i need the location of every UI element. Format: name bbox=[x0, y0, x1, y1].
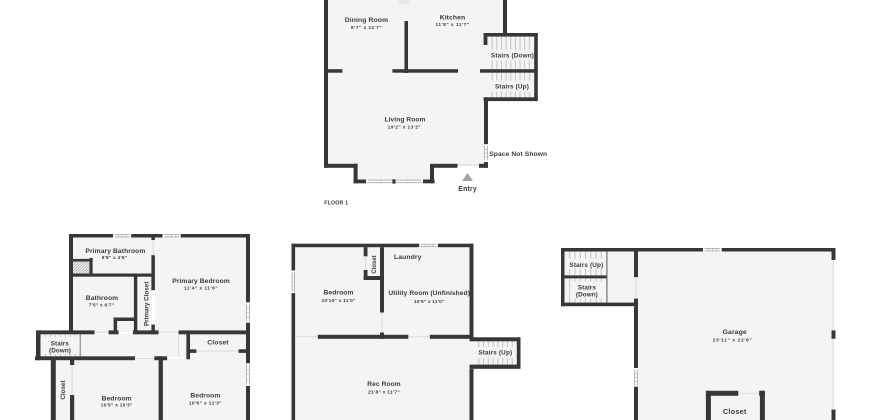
svg-text:19'2" x 13'2": 19'2" x 13'2" bbox=[388, 125, 421, 131]
svg-text:10'5" x 10'3": 10'5" x 10'3" bbox=[101, 403, 133, 409]
svg-text:9'7" x 11'7": 9'7" x 11'7" bbox=[351, 25, 382, 31]
svg-text:23'11" x 22'6": 23'11" x 22'6" bbox=[713, 338, 753, 344]
svg-text:Closet: Closet bbox=[207, 339, 229, 346]
svg-text:Garage: Garage bbox=[723, 329, 747, 336]
svg-text:Closet: Closet bbox=[372, 255, 378, 273]
svg-text:Stairs (Down): Stairs (Down) bbox=[491, 52, 534, 59]
svg-text:11'4" x 11'6": 11'4" x 11'6" bbox=[184, 286, 218, 292]
svg-text:Kitchen: Kitchen bbox=[440, 15, 466, 22]
svg-text:Laundry: Laundry bbox=[394, 254, 422, 261]
svg-text:Stairs (Up): Stairs (Up) bbox=[478, 350, 512, 357]
svg-text:Stairs (Up): Stairs (Up) bbox=[495, 83, 529, 90]
svg-text:Dining Room: Dining Room bbox=[345, 17, 388, 24]
svg-text:(Down): (Down) bbox=[49, 347, 71, 354]
svg-text:Bedroom: Bedroom bbox=[190, 393, 220, 400]
svg-text:10'6" x 11'3": 10'6" x 11'3" bbox=[189, 401, 222, 407]
svg-text:Bedroom: Bedroom bbox=[102, 396, 132, 403]
svg-text:10'10" x 11'0": 10'10" x 11'0" bbox=[321, 298, 355, 304]
svg-text:Utility Room (Unfinished): Utility Room (Unfinished) bbox=[388, 290, 470, 297]
svg-text:Stairs (Up): Stairs (Up) bbox=[569, 262, 603, 269]
svg-text:Living Room: Living Room bbox=[384, 116, 425, 123]
svg-text:10'5" x 11'0": 10'5" x 11'0" bbox=[414, 299, 445, 305]
svg-text:FLOOR 1: FLOOR 1 bbox=[324, 201, 348, 207]
svg-text:9'8" x 4'6": 9'8" x 4'6" bbox=[102, 255, 128, 260]
svg-text:Rec Room: Rec Room bbox=[367, 381, 400, 388]
svg-text:(Down): (Down) bbox=[576, 291, 598, 298]
svg-text:Primary Closet: Primary Closet bbox=[143, 281, 150, 326]
svg-text:7'5" x 6'7": 7'5" x 6'7" bbox=[89, 303, 115, 308]
svg-text:Closet: Closet bbox=[723, 407, 747, 416]
svg-text:Space Not Shown: Space Not Shown bbox=[489, 151, 547, 158]
svg-text:11'8" x 11'7": 11'8" x 11'7" bbox=[435, 22, 469, 28]
svg-text:Primary Bedroom: Primary Bedroom bbox=[172, 278, 230, 285]
svg-text:Bedroom: Bedroom bbox=[323, 290, 353, 297]
svg-text:21'8" x 11'7": 21'8" x 11'7" bbox=[368, 389, 400, 395]
svg-text:Closet: Closet bbox=[60, 379, 67, 399]
svg-text:Bathroom: Bathroom bbox=[86, 295, 118, 302]
svg-text:Entry: Entry bbox=[458, 186, 476, 193]
